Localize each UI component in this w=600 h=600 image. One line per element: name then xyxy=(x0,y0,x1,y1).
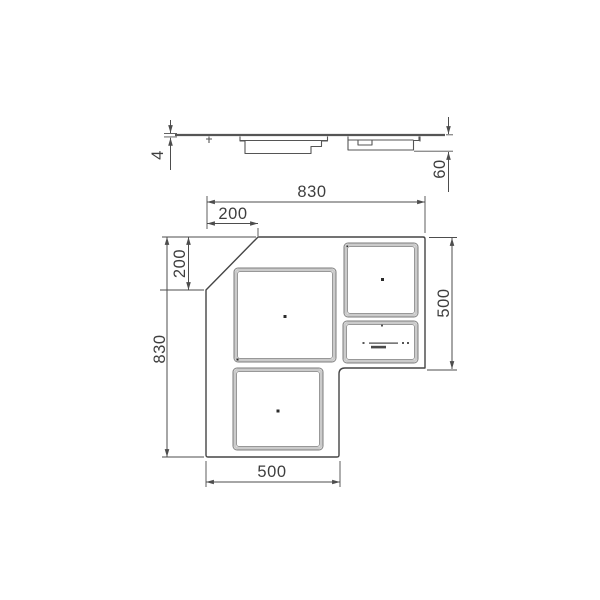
dim-body-depth: 60 xyxy=(414,117,453,192)
dim-label-4: 4 xyxy=(149,150,167,160)
control-mark-dot xyxy=(402,342,404,344)
control-panel xyxy=(343,321,418,363)
side-view: 4 60 xyxy=(149,117,453,192)
control-mark-dot xyxy=(363,342,365,344)
control-mark-dot xyxy=(407,342,409,344)
dim-label-500-right: 500 xyxy=(435,288,453,317)
dim-chamfer-width: 200 xyxy=(207,205,258,236)
dim-label-830-left: 830 xyxy=(151,334,169,363)
cooking-zone-left-upper xyxy=(234,268,336,362)
dim-label-500-bottom: 500 xyxy=(257,463,286,481)
zone-center-dot xyxy=(381,278,384,281)
technical-drawing-page: 4 60 xyxy=(0,0,600,600)
zone-corner-dot xyxy=(237,359,239,361)
plan-view: 830 200 200 830 500 xyxy=(151,183,457,487)
zone-center-dot xyxy=(277,410,280,413)
dim-label-830-top: 830 xyxy=(297,183,326,201)
cooking-zone-right xyxy=(344,243,418,317)
left-clip-profile xyxy=(206,137,212,144)
right-housing-profile xyxy=(348,137,419,151)
left-housing-profile xyxy=(240,137,328,154)
dim-right-arm-depth: 500 xyxy=(427,238,457,371)
control-slider-bar xyxy=(369,342,398,344)
dim-label-200-top: 200 xyxy=(218,205,247,223)
right-housing-notch xyxy=(358,141,372,146)
dim-glass-thickness: 4 xyxy=(149,120,177,170)
dim-label-200-left: 200 xyxy=(171,249,189,278)
control-top-dot xyxy=(381,325,383,327)
corner-hob-technical-drawing: 4 60 xyxy=(0,0,600,600)
dim-label-60: 60 xyxy=(431,159,449,179)
cooking-zone-left-lower xyxy=(233,368,323,450)
dim-bottom-arm-width: 500 xyxy=(206,461,340,487)
zone-center-dot xyxy=(284,315,287,318)
zone-corner-dot xyxy=(347,246,349,248)
brand-logo-mark xyxy=(371,346,386,349)
